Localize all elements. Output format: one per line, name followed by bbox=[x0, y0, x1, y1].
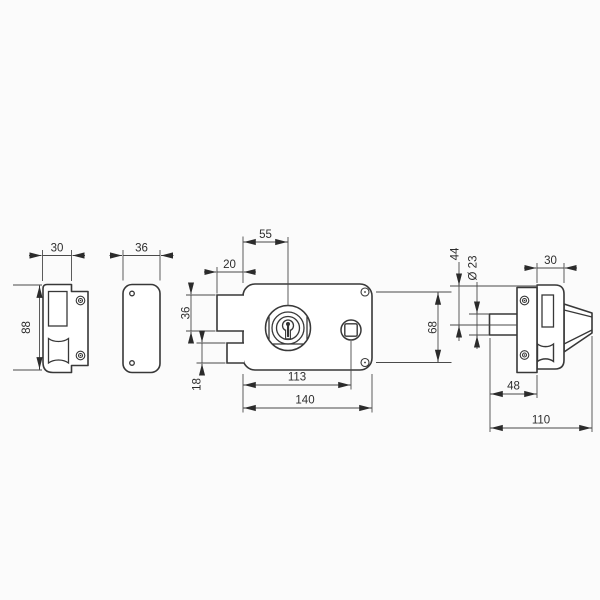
cylinder-face bbox=[266, 306, 311, 351]
dim-total-depth-label: 110 bbox=[532, 415, 550, 427]
dim-strike-height-label: 88 bbox=[21, 321, 33, 334]
dim-case-width-label: 30 bbox=[544, 255, 557, 267]
dim-case-top-to-axis-label: 44 bbox=[450, 247, 462, 260]
screw-hole bbox=[520, 296, 529, 305]
dim-body-width: 140 bbox=[243, 374, 372, 413]
screw-hole bbox=[76, 296, 85, 305]
screw-hole bbox=[361, 288, 369, 296]
dim-latch-height-label: 36 bbox=[181, 307, 193, 320]
lock-side-view bbox=[490, 285, 593, 373]
drawing-page: 30 88 36 bbox=[0, 0, 600, 600]
dim-deadbolt-height-label: 18 bbox=[192, 378, 204, 391]
cylinder-side bbox=[490, 314, 518, 335]
dim-screw-spacing: 68 bbox=[376, 292, 452, 363]
dim-cylinder-backset-label: 48 bbox=[507, 381, 520, 393]
dim-cylinder-offset-label: 55 bbox=[259, 229, 272, 241]
dim-screw-spacing-label: 68 bbox=[428, 321, 440, 334]
latch-bolt bbox=[217, 295, 244, 331]
dim-strike-height: 88 bbox=[13, 285, 42, 370]
key-blade bbox=[287, 323, 289, 338]
dim-strike-width-label: 30 bbox=[51, 243, 64, 255]
dim-latch-projection-label: 20 bbox=[223, 259, 236, 271]
dim-strike-width: 30 bbox=[29, 243, 85, 282]
dim-case-width: 30 bbox=[524, 255, 577, 283]
strike-plate-side-view bbox=[123, 285, 160, 373]
deadbolt bbox=[227, 343, 244, 363]
screw-hole bbox=[76, 351, 85, 360]
dim-body-width-label: 140 bbox=[295, 395, 314, 407]
dim-strike-side-width-label: 36 bbox=[135, 243, 148, 255]
strike-plate-front-view bbox=[43, 285, 88, 373]
bolt-cutout-side bbox=[538, 344, 554, 362]
case-wedge bbox=[564, 304, 592, 352]
dim-strike-side-width: 36 bbox=[110, 243, 174, 281]
dim-deadbolt-height: 18 bbox=[192, 332, 226, 391]
strike-side-outline bbox=[123, 285, 160, 373]
dim-cylinder-diameter: Ø 23 bbox=[468, 256, 490, 349]
dim-latch-height: 36 bbox=[181, 283, 216, 343]
dim-follower-offset-label: 113 bbox=[288, 372, 306, 384]
screw-hole bbox=[361, 359, 369, 367]
dim-cylinder-diameter-label: Ø 23 bbox=[468, 256, 480, 281]
technical-drawing-canvas: 30 88 36 bbox=[0, 0, 600, 600]
lock-front-view bbox=[217, 284, 372, 370]
screw-hole bbox=[520, 351, 529, 360]
